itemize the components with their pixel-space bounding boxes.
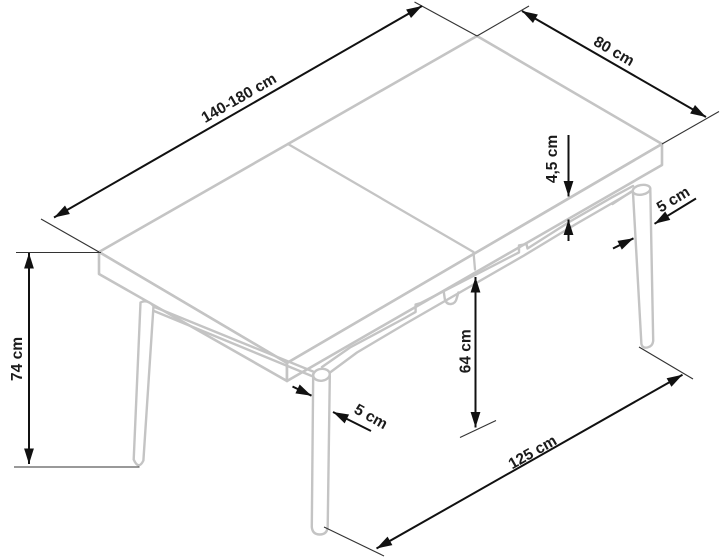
svg-text:5 cm: 5 cm (351, 401, 390, 433)
svg-text:4,5 cm: 4,5 cm (544, 135, 561, 183)
svg-text:74 cm: 74 cm (9, 337, 26, 381)
svg-text:125 cm: 125 cm (506, 432, 560, 473)
svg-text:140-180 cm: 140-180 cm (199, 70, 280, 126)
svg-text:64 cm: 64 cm (458, 329, 475, 373)
